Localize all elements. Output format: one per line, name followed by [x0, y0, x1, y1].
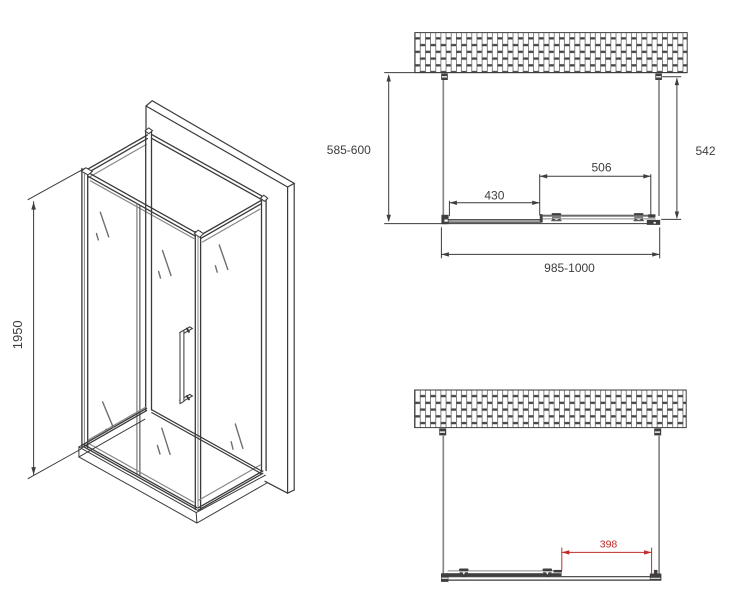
svg-text:585-600: 585-600	[327, 143, 371, 157]
svg-text:985-1000: 985-1000	[544, 261, 595, 275]
svg-text:398: 398	[600, 538, 618, 550]
svg-text:1950: 1950	[10, 320, 25, 349]
svg-text:542: 542	[696, 144, 716, 158]
svg-text:430: 430	[484, 188, 504, 202]
svg-text:506: 506	[591, 160, 611, 174]
